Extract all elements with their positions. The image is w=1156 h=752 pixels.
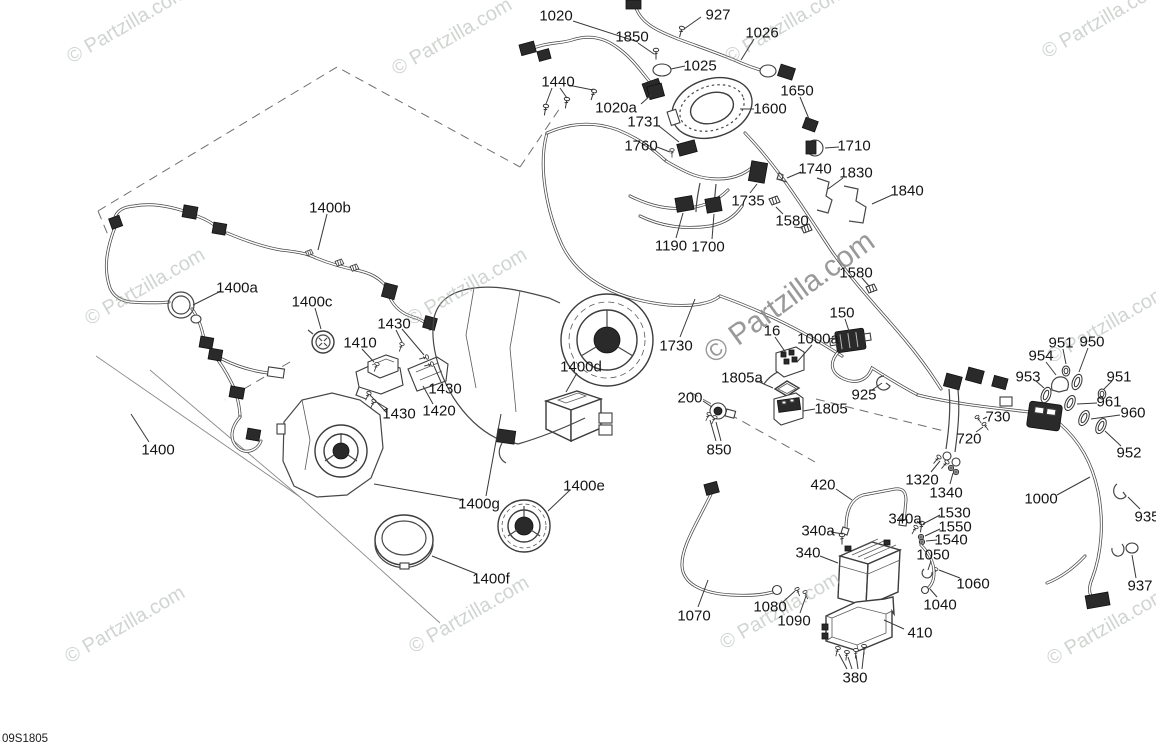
part-label-380-58[interactable]: 380 [842,669,867,686]
part-label-1400a-60[interactable]: 1400a [216,279,258,296]
part-label-1190-17[interactable]: 1190 [655,237,687,254]
part-label-1400f-70[interactable]: 1400f [472,570,510,587]
watermark-large: © Partzilla.com [698,225,881,371]
leader-line [680,299,695,337]
part-label-1440-5[interactable]: 1440 [541,73,574,90]
watermark-tile: © Partzilla.com [81,244,209,330]
part-label-1400c-61[interactable]: 1400c [292,293,333,310]
leader-line [836,489,852,500]
part-label-954-31[interactable]: 954 [1028,347,1053,364]
leader-line [703,401,712,407]
part-label-1025-4[interactable]: 1025 [683,57,716,74]
leader-line [775,337,786,353]
leader-line [698,580,708,607]
watermark-tile: © Partzilla.com [721,0,849,68]
leader-line [862,651,864,669]
part-label-960-35[interactable]: 960 [1120,404,1145,421]
part-label-340-53[interactable]: 340 [795,544,820,561]
leader-line [856,655,858,669]
part-label-340a-46[interactable]: 340a [888,510,922,527]
watermark-tile: © Partzilla.com [388,0,516,80]
leader-line [684,17,701,29]
part-label-1840-14[interactable]: 1840 [890,182,923,199]
part-label-950-30[interactable]: 950 [1079,333,1104,350]
part-label-1050-47[interactable]: 1050 [916,546,949,563]
part-label-1430-64[interactable]: 1430 [428,380,461,397]
part-label-1026-3[interactable]: 1026 [745,24,778,41]
watermark-tile: © Partzilla.com [1038,0,1156,63]
leader-line [546,88,552,104]
part-label-1420-65[interactable]: 1420 [422,402,455,419]
leader-line [315,308,321,329]
part-label-925-25[interactable]: 925 [851,386,876,403]
leader-line [1091,415,1120,419]
part-label-1740-12[interactable]: 1740 [798,160,831,177]
leader-line [848,657,852,669]
part-label-850-28[interactable]: 850 [706,441,731,458]
part-label-1580-19[interactable]: 1580 [839,264,872,281]
leader-line [820,556,838,563]
part-label-410-57[interactable]: 410 [907,624,932,641]
watermark-tile: © Partzilla.com [1043,282,1156,368]
leader-line [676,213,683,238]
leader-line [131,414,149,442]
diagram-id: 09S1805 [2,733,48,745]
part-label-340a-52[interactable]: 340a [801,522,835,539]
part-label-1400e-69[interactable]: 1400e [563,477,605,494]
leader-line [1128,497,1140,509]
part-label-1735-15[interactable]: 1735 [731,192,764,209]
part-label-1730-23[interactable]: 1730 [659,337,692,354]
part-label-1430-66[interactable]: 1430 [382,405,415,422]
part-label-1400-71[interactable]: 1400 [141,441,174,458]
part-label-1410-63[interactable]: 1410 [343,334,376,351]
watermark-tile: © Partzilla.com [405,572,533,658]
part-label-1850-2[interactable]: 1850 [615,28,648,45]
part-label-1040-49[interactable]: 1040 [923,596,956,613]
part-label-961-34[interactable]: 961 [1096,393,1121,410]
part-label-420-51[interactable]: 420 [810,476,835,493]
leader-line [659,126,679,142]
part-label-1000-41[interactable]: 1000 [1024,490,1057,507]
part-label-1700-18[interactable]: 1700 [691,238,724,255]
part-label-951-33[interactable]: 951 [1106,368,1131,385]
part-label-1760-10[interactable]: 1760 [624,137,657,154]
leader-line [1057,477,1090,495]
leader-line [712,214,714,239]
part-label-1805-27[interactable]: 1805 [814,400,847,417]
part-label-952-36[interactable]: 952 [1116,444,1141,461]
part-label-1430-62[interactable]: 1430 [377,315,410,332]
part-label-927-1[interactable]: 927 [705,6,730,23]
leader-line [884,620,904,629]
parts-diagram-canvas: © Partzilla.com© Partzilla.com© Partzill… [0,0,1156,752]
part-label-937-50[interactable]: 937 [1127,577,1152,594]
watermark-tile: © Partzilla.com [1043,584,1156,670]
part-label-16-22[interactable]: 16 [764,322,781,339]
part-label-1400d-67[interactable]: 1400d [560,358,602,375]
leader-line [432,556,477,574]
leader-line [800,97,809,119]
part-label-1070-54[interactable]: 1070 [677,607,710,624]
leader-line [710,420,716,441]
part-label-200-26[interactable]: 200 [677,389,702,406]
leader-line [872,195,892,204]
watermark-tile: © Partzilla.com [63,0,191,68]
part-label-150-20[interactable]: 150 [829,304,854,321]
part-label-1805a-24[interactable]: 1805a [721,369,763,386]
part-label-1020-0[interactable]: 1020 [539,7,572,24]
leader-line [1132,555,1136,578]
leader-line [402,329,424,355]
leader-line [839,654,847,669]
part-label-1400b-59[interactable]: 1400b [309,199,351,216]
watermark-tile: © Partzilla.com [61,582,189,668]
leader-line [797,345,812,362]
part-label-1580-16[interactable]: 1580 [775,212,808,229]
part-label-730-37[interactable]: 730 [985,408,1010,425]
leader-line [950,473,953,484]
leader-line [716,422,721,441]
part-label-1340-40[interactable]: 1340 [929,484,962,501]
watermark-tile: © Partzilla.com [403,244,531,330]
part-label-1650-6[interactable]: 1650 [780,82,813,99]
leader-line [803,409,815,411]
leader-line [318,214,327,250]
part-label-1090-56[interactable]: 1090 [777,612,810,629]
part-label-1710-11[interactable]: 1710 [837,137,870,154]
part-label-953-32[interactable]: 953 [1015,368,1040,385]
leader-line [657,147,670,152]
part-label-1600-8[interactable]: 1600 [753,100,786,117]
part-label-1060-48[interactable]: 1060 [956,575,989,592]
part-label-935-42[interactable]: 935 [1134,508,1156,525]
part-label-1400g-68[interactable]: 1400g [458,495,500,512]
part-label-1830-13[interactable]: 1830 [839,164,872,181]
leader-line [374,484,464,500]
leader-line [566,373,577,392]
part-label-720-38[interactable]: 720 [956,430,981,447]
leader-line [1077,403,1097,404]
part-label-1000a-21[interactable]: 1000a [797,330,839,347]
leader-line [641,95,651,104]
part-label-1731-9[interactable]: 1731 [627,113,660,130]
callout-overlay: © Partzilla.com© Partzilla.com© Partzill… [0,0,1156,752]
leader-line [486,414,501,496]
